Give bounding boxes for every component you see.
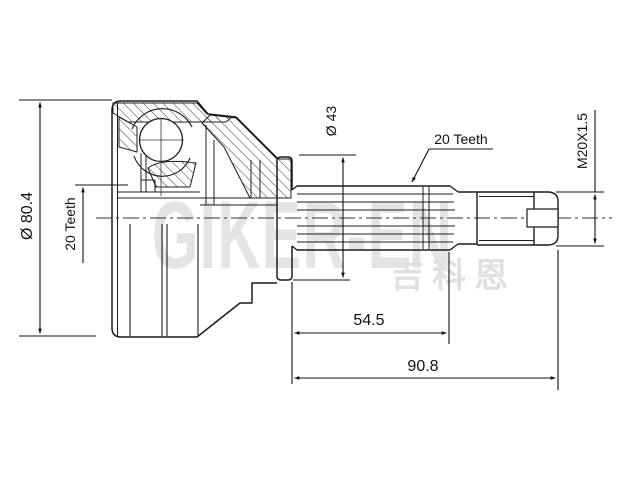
technical-drawing-canvas: GIKER-EN 吉科恩: [0, 0, 640, 480]
dim-total-length: 90.8: [295, 250, 559, 390]
label-housing-teeth: 20 Teeth: [62, 197, 78, 250]
label-thread: M20X1.5: [574, 113, 590, 169]
label-boot-od: Ø 43: [323, 106, 339, 137]
bell-housing: [112, 101, 292, 337]
dim-housing-teeth: 20 Teeth: [62, 185, 128, 263]
dim-thread: M20X1.5: [556, 110, 604, 246]
label-total-length: 90.8: [407, 358, 438, 375]
label-housing-od: Ø 80.4: [19, 192, 36, 240]
dim-boot-seat-diameter: Ø 43: [293, 106, 356, 280]
label-shaft-teeth: 20 Teeth: [434, 131, 487, 147]
cv-joint-drawing: Ø 80.4 20 Teeth Ø 43 20 Teeth M20X1: [0, 0, 640, 480]
callout-shaft-teeth: 20 Teeth: [412, 131, 493, 182]
label-spline-length: 54.5: [353, 312, 384, 329]
